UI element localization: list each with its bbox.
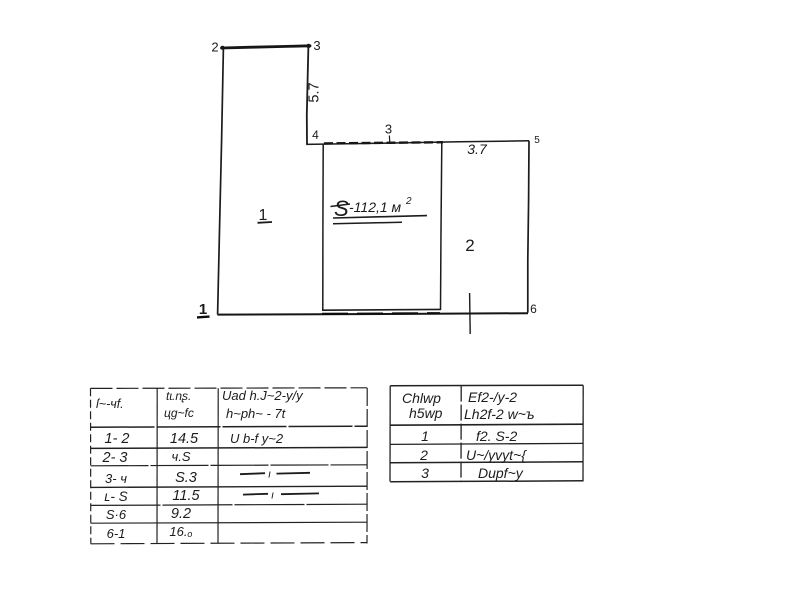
svg-text:h~ph~ - 7t: h~ph~ - 7t <box>226 406 287 421</box>
svg-text:Uad h.J~2-y/y: Uad h.J~2-y/y <box>222 388 304 403</box>
svg-text:2- 3: 2- 3 <box>102 450 128 466</box>
svg-text:3: 3 <box>385 122 392 137</box>
svg-text:6: 6 <box>530 302 537 316</box>
svg-text:1- 2: 1- 2 <box>105 431 130 447</box>
svg-text:2: 2 <box>419 447 428 463</box>
svg-text:U b-f y~2: U b-f y~2 <box>230 431 284 446</box>
svg-text:U~/yvyt~{: U~/yvyt~{ <box>466 447 527 463</box>
svg-text:цg~fc: цg~fc <box>164 406 194 420</box>
svg-text:4: 4 <box>312 128 319 142</box>
svg-text:9.2: 9.2 <box>171 506 191 522</box>
svg-text:h5wp: h5wp <box>409 405 443 421</box>
svg-text:3.7: 3.7 <box>467 141 488 157</box>
svg-text:f2. S-2: f2. S-2 <box>476 428 517 444</box>
svg-text:5.7: 5.7 <box>307 82 323 102</box>
svg-text:Ef2-/y-2: Ef2-/y-2 <box>468 389 517 405</box>
svg-text:14.5: 14.5 <box>170 431 199 447</box>
svg-text:ı: ı <box>271 490 274 502</box>
svg-text:ʟ- S: ʟ- S <box>104 489 127 504</box>
svg-text:3: 3 <box>313 38 320 53</box>
svg-text:2: 2 <box>465 236 474 255</box>
svg-text:S·6: S·6 <box>106 507 127 522</box>
svg-text:S.3: S.3 <box>175 470 197 486</box>
svg-text:tɩ.nʂ.: tɩ.nʂ. <box>166 389 191 403</box>
svg-text:2: 2 <box>405 196 412 207</box>
svg-text:Lh2f-2 w~ъ: Lh2f-2 w~ъ <box>464 406 535 422</box>
svg-text:6-1: 6-1 <box>107 526 126 541</box>
svg-text:3: 3 <box>421 465 429 481</box>
svg-text:3- ч: 3- ч <box>105 471 127 486</box>
svg-text:1: 1 <box>199 301 207 318</box>
svg-text:Chlwp: Chlwp <box>402 390 441 406</box>
svg-text:5: 5 <box>534 135 540 146</box>
svg-text:-112,1 м: -112,1 м <box>349 199 402 215</box>
svg-text:1: 1 <box>421 428 429 444</box>
svg-text:11.5: 11.5 <box>172 488 200 504</box>
svg-text:ſ~-чf.: ſ~-чf. <box>96 397 124 411</box>
svg-text:ı: ı <box>268 469 271 481</box>
svg-text:ч.S: ч.S <box>171 449 190 464</box>
svg-text:16.ₒ: 16.ₒ <box>169 524 192 539</box>
svg-text:Dupf~y: Dupf~y <box>478 465 524 481</box>
svg-text:2: 2 <box>211 40 218 55</box>
